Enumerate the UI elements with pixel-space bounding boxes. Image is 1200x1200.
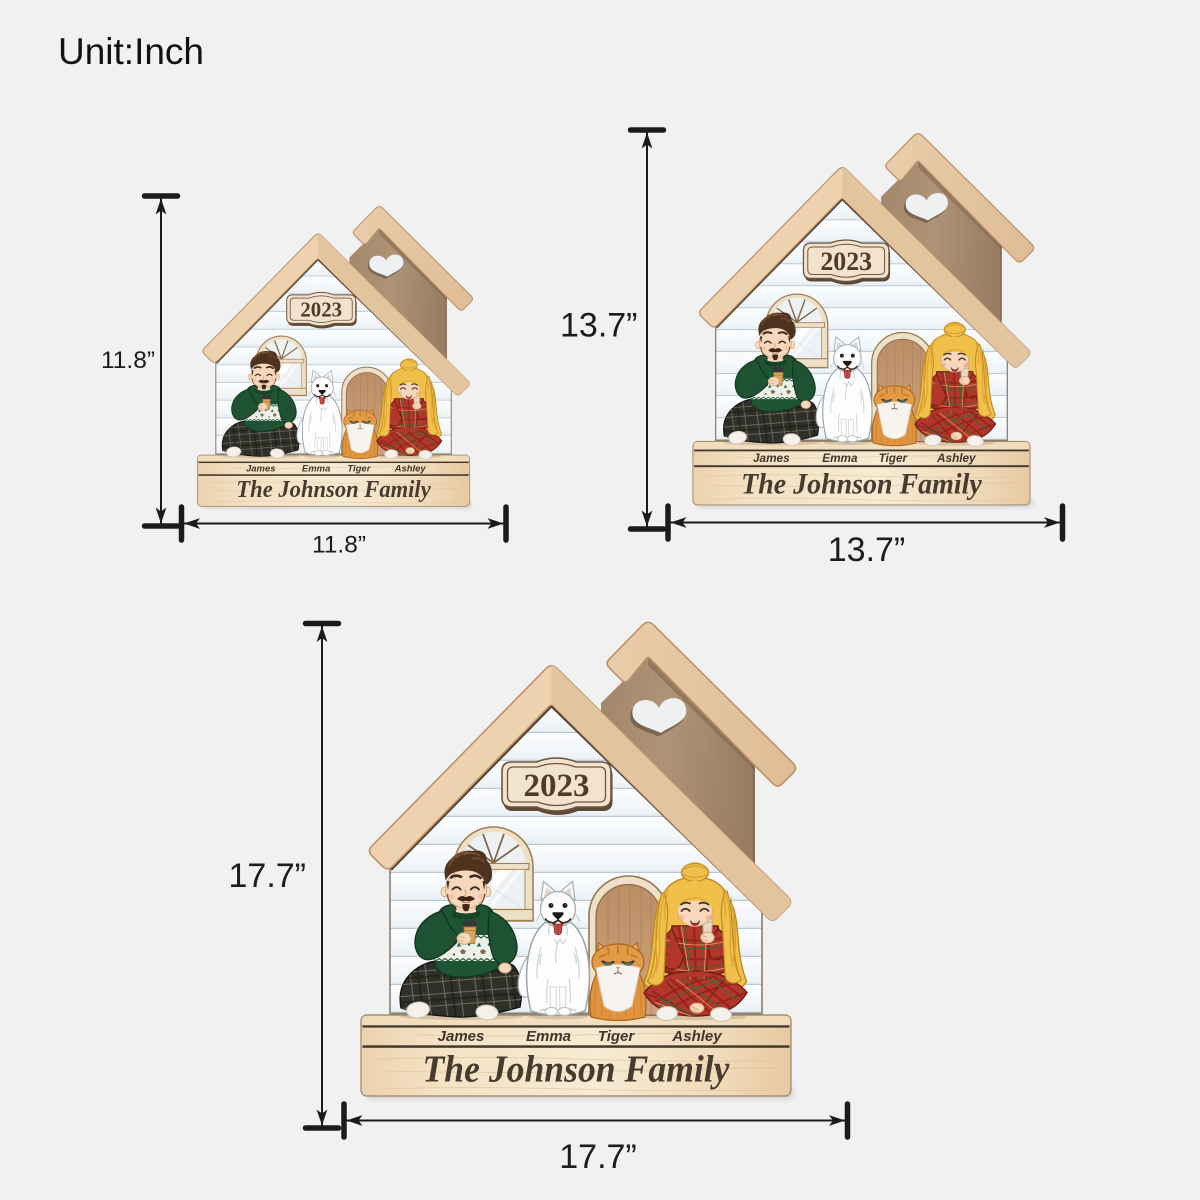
svg-text:Unit:Inch: Unit:Inch	[58, 31, 204, 72]
svg-text:11.8”: 11.8”	[312, 532, 366, 559]
svg-text:11.8”: 11.8”	[101, 347, 155, 374]
svg-text:17.7”: 17.7”	[559, 1138, 637, 1176]
svg-text:17.7”: 17.7”	[229, 857, 307, 895]
svg-text:13.7”: 13.7”	[828, 531, 906, 569]
svg-text:13.7”: 13.7”	[560, 307, 638, 345]
